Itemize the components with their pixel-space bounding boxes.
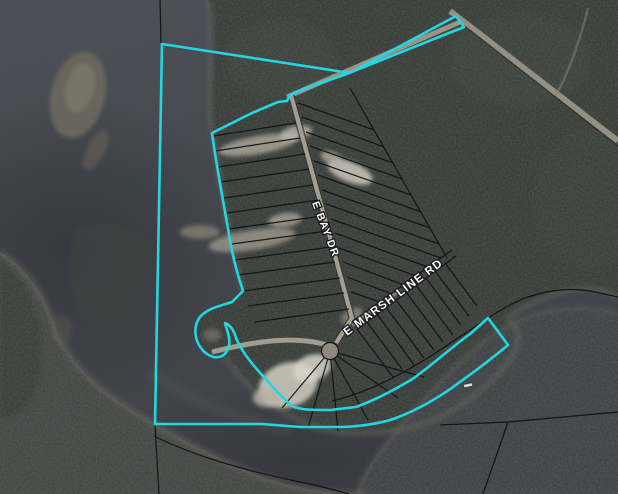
map-canvas[interactable]: E BAY DR E MARSH LINE RD xyxy=(0,0,618,494)
cul-de-sac xyxy=(322,343,339,360)
map-viewport: E BAY DR E MARSH LINE RD xyxy=(0,0,618,494)
